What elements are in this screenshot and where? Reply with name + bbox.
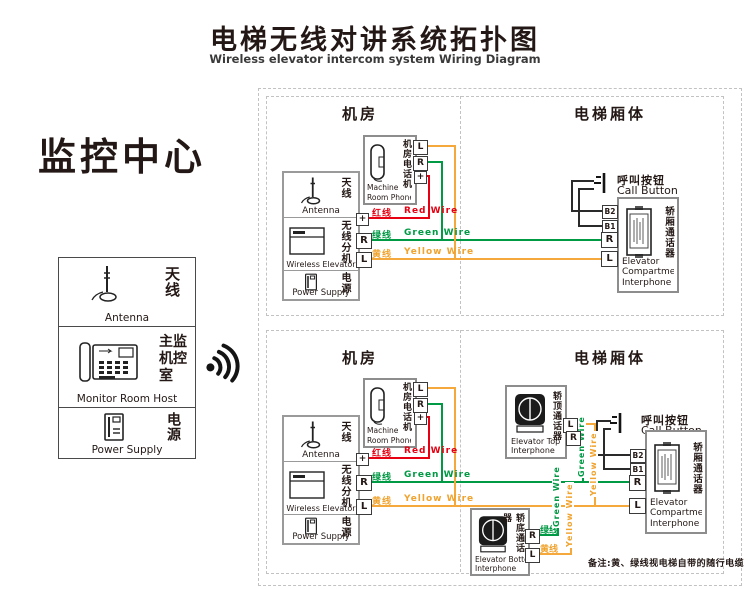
wall-phone-icon (369, 143, 387, 183)
lower-machine-room-phone-en: Machine Room Phone (367, 426, 411, 445)
lower-station-power-row: 电源 Power Supply (284, 515, 358, 543)
upper-station-power-row: 电源 Power Supply (284, 271, 358, 299)
lower-callbutton-bracket (604, 468, 630, 470)
upper-station-terminal-plus: + (356, 213, 369, 226)
elevator-top-interphone-zh: 轿顶通话器 (550, 391, 563, 441)
upper-green-wire-stub (426, 161, 443, 163)
elevator-top-interphone-en: Elevator Top Interphone (511, 437, 561, 456)
upper-machine-room-phone-zh: 机房电话机 (400, 139, 413, 189)
page-subtitle: Wireless elevator intercom system Wiring… (155, 52, 595, 66)
upper-machine-room-phone-box: 机房电话机 Machine Room Phone (363, 135, 417, 205)
upper-machine-room-label: 机房 (342, 103, 378, 124)
lower-compartment-interphone-en: Elevator Compartment Interphone (650, 498, 702, 530)
upper-callbutton-bracket (572, 180, 594, 182)
lower-machine-room-phone-zh: 机房电话机 (400, 382, 413, 432)
lower-mrp-terminal-r: R (413, 398, 428, 413)
compartment-interphone-icon (626, 206, 652, 258)
compartment-interphone-icon (654, 442, 680, 494)
lower-green-wire-label: 绿线 Green Wire (372, 470, 471, 483)
upper-interphone-terminal-r: R (601, 232, 618, 248)
lower-station-terminal-l: L (356, 499, 372, 515)
call-button-icon (608, 411, 626, 435)
mc-power-en: Power Supply (59, 444, 195, 456)
upper-station-antenna-zh: 天线 (337, 177, 352, 199)
mc-antenna-en: Antenna (59, 312, 195, 324)
upper-callbutton-bracket (578, 188, 580, 227)
lower-section-divider (460, 330, 461, 572)
lower-elevator-car-label: 电梯厢体 (574, 347, 646, 368)
upper-station-terminal-r: R (356, 233, 372, 249)
power-supply-icon (103, 412, 125, 442)
lower-yellow-wire-label: 黄线 Yellow Wire (372, 494, 474, 507)
upper-machine-room-phone-en: Machine Room Phone (367, 183, 411, 202)
lower-yellow-wire-stub (426, 387, 456, 389)
wireless-unit-icon (289, 471, 325, 499)
wireless-signal-icon (196, 336, 252, 392)
top-interphone-terminal-r: R (566, 431, 581, 446)
footnote: 备注:黄、绿线视电梯自带的随行电缆 (588, 556, 744, 569)
wireless-unit-icon (289, 227, 325, 255)
lower-station-wireless-row: 无线分机 Wireless Elevator (284, 462, 358, 515)
upper-yellow-wire-stub (426, 145, 456, 147)
bottom-branch-green-wire-label: Green Wire (552, 465, 561, 528)
upper-call-button-en: Call Button (617, 184, 678, 197)
wiring-diagram-canvas: 电梯无线对讲系统拓扑图 Wireless elevator intercom s… (0, 0, 750, 589)
upper-callbutton-bracket (571, 180, 573, 212)
lower-callbutton-bracket (604, 428, 611, 430)
upper-callbutton-bracket (579, 188, 594, 190)
elevator-bottom-interphone-en: Elevator Bottom Interphone (475, 555, 525, 573)
mc-antenna-zh: 天线 (162, 266, 183, 298)
upper-station-wireless-zh: 无线分机 (337, 220, 352, 264)
lower-machine-room-label: 机房 (342, 347, 378, 368)
elevator-bottom-interphone-zh: 轿底通话器 (500, 513, 526, 561)
upper-station-antenna-row: 天线 Antenna (284, 173, 358, 218)
lower-station-terminal-r: R (356, 475, 372, 491)
lower-station-antenna-zh: 天线 (337, 421, 352, 443)
bottom-interphone-terminal-r: R (525, 529, 540, 544)
lower-station-terminal-plus: + (356, 453, 369, 466)
upper-station-power-en: Power Supply (284, 288, 358, 298)
upper-compartment-interphone-en: Elevator Compartment Interphone (622, 257, 674, 289)
antenna-icon (300, 420, 324, 450)
speaker-interphone-icon (514, 393, 546, 433)
upper-mrp-terminal-r: R (413, 156, 428, 171)
upper-section-divider (460, 96, 461, 314)
monitoring-center-box: 天线 Antenna 主监 机控 室 Monitor R (58, 257, 196, 459)
lower-station-antenna-row: 天线 Antenna (284, 417, 358, 462)
lower-red-wire-label: 红线 Red Wire (372, 446, 458, 459)
upper-interphone-terminal-l: L (601, 251, 618, 267)
upper-red-wire-label: 红线 Red Wire (372, 206, 458, 219)
mc-host-row: 主监 机控 室 Monitor Room Host (59, 327, 195, 408)
upper-station-antenna-en: Antenna (284, 206, 358, 216)
lower-compartment-interphone-zh: 轿厢通话器 (689, 442, 703, 500)
top-branch-yellow-wire-label: Yellow Wire (589, 431, 598, 497)
lower-interphone-terminal-b2: B2 (630, 449, 646, 463)
mc-power-row: 电源 Power Supply (59, 408, 195, 458)
upper-callbutton-bracket (572, 210, 603, 212)
upper-yellow-wire-label: 黄线 Yellow Wire (372, 247, 474, 260)
upper-compartment-interphone-zh: 轿厢通话器 (661, 206, 675, 264)
wall-phone-icon (369, 386, 387, 426)
lower-station-power-en: Power Supply (284, 532, 358, 542)
upper-mrp-terminal-l: L (413, 140, 428, 155)
lower-station-wireless-zh: 无线分机 (337, 464, 352, 508)
antenna-icon (300, 176, 324, 206)
upper-compartment-interphone-box: 轿厢通话器 Elevator Compartment Interphone (617, 197, 679, 293)
lower-mrp-terminal-plus: + (414, 412, 427, 425)
upper-mrp-terminal-plus: + (414, 171, 427, 184)
monitoring-center-title: 监控中心 (38, 126, 206, 181)
lower-interphone-terminal-r: R (629, 475, 646, 491)
bottom-branch-yellow-wire-label: Yellow Wire (565, 482, 574, 548)
lower-green-wire-stub (426, 403, 443, 405)
upper-station-wireless-row: 无线分机 Wireless Elevator (284, 218, 358, 271)
upper-elevator-car-label: 电梯厢体 (574, 103, 646, 124)
lower-compartment-interphone-box: 轿厢通话器 Elevator Compartment Interphone (645, 430, 707, 534)
upper-interphone-terminal-b2: B2 (602, 205, 618, 219)
mc-host-zh: 主监 机控 室 (159, 334, 187, 384)
lower-machine-room-phone-box: 机房电话机 Machine Room Phone (363, 378, 417, 448)
bottom-interphone-yellow-label: 黄线 (540, 542, 558, 555)
lower-callbutton-bracket (603, 428, 605, 470)
upper-callbutton-bracket (579, 225, 603, 227)
lower-callbutton-bracket (597, 420, 611, 422)
bottom-interphone-terminal-l: L (525, 548, 540, 563)
lower-interphone-terminal-l: L (629, 498, 646, 514)
lower-station-box: 天线 Antenna 无线分机 Wireless Elevator 电源 Pow… (282, 415, 360, 545)
call-button-icon (592, 171, 610, 195)
mc-host-en: Monitor Room Host (59, 393, 195, 405)
upper-yellow-wire-v (454, 145, 456, 260)
upper-station-terminal-l: L (356, 252, 372, 268)
lower-station-antenna-en: Antenna (284, 450, 358, 460)
elevator-top-interphone-box: 轿顶通话器 Elevator Top Interphone (505, 385, 567, 459)
lower-callbutton-bracket (597, 454, 630, 456)
top-branch-green-wire-label: Green Wire (577, 415, 586, 478)
upper-station-wireless-en: Wireless Elevator (284, 260, 358, 269)
upper-green-wire-label: 绿线 Green Wire (372, 228, 471, 241)
upper-station-box: 天线 Antenna 无线分机 Wireless Elevator 电源 Pow… (282, 171, 360, 301)
desk-phone-icon (77, 337, 141, 385)
mc-antenna-row: 天线 Antenna (59, 258, 195, 327)
mc-power-zh: 电源 (163, 412, 183, 442)
lower-station-wireless-en: Wireless Elevator (284, 504, 358, 513)
elevator-bottom-interphone-box: 轿底通话器 Elevator Bottom Interphone (470, 508, 530, 576)
lower-mrp-terminal-l: L (413, 382, 428, 397)
antenna-icon (91, 264, 121, 304)
